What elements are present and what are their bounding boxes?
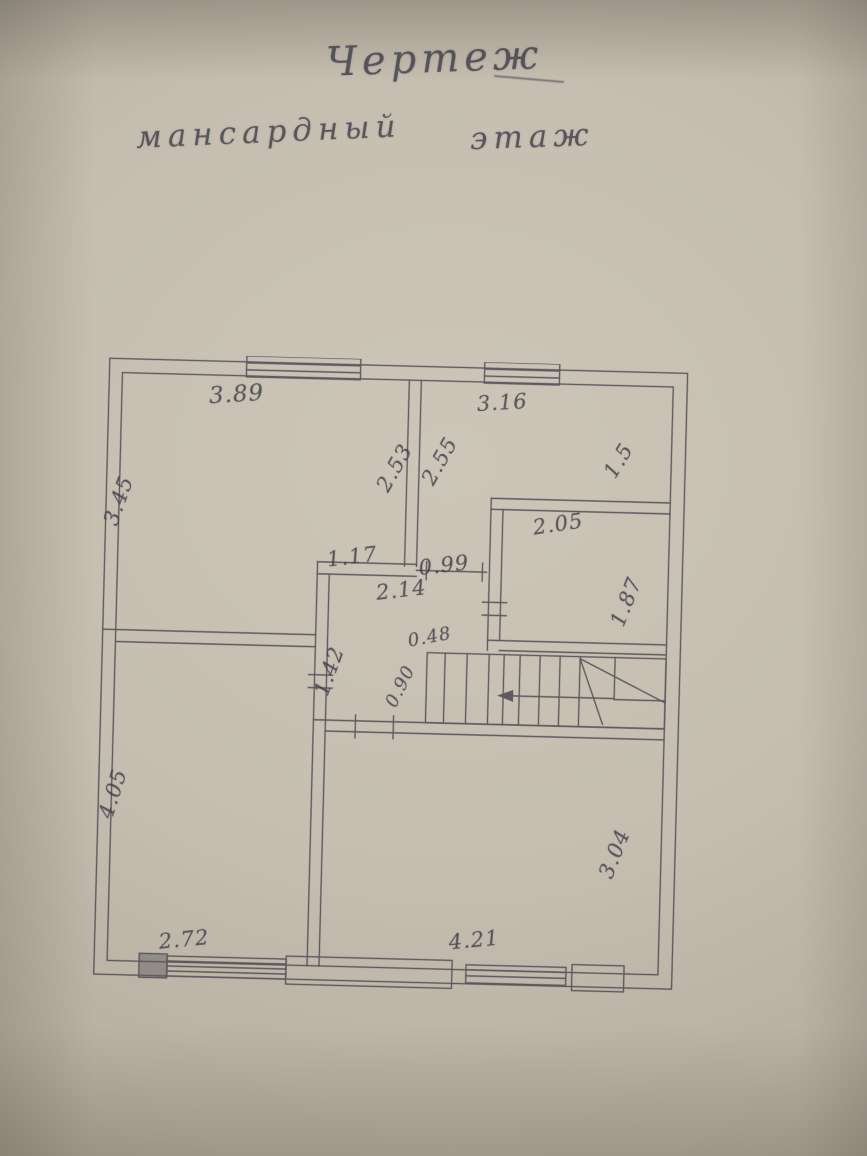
wall-line (491, 498, 670, 503)
stair-step (538, 656, 540, 726)
photo-of-paper-drawing: Чертеж мансардный этаж (0, 0, 867, 1156)
stair-step (443, 653, 445, 723)
drawing-subtitle-word2: этаж (469, 117, 595, 157)
wall-hall-bottom (313, 714, 664, 746)
stair-winder-line (579, 659, 666, 703)
window-hatch (485, 376, 560, 378)
balcony-door-bottom-center (286, 956, 453, 988)
stair-step (502, 655, 504, 725)
wall-line (500, 510, 503, 641)
wall-vertical-divider (301, 562, 336, 966)
wall-line (488, 640, 667, 645)
door-jamb (355, 715, 356, 738)
wall-line (499, 651, 666, 655)
window-hatch (167, 966, 286, 969)
window-hatch (167, 971, 286, 974)
window-top-right (484, 362, 560, 385)
window-hatch (247, 370, 361, 373)
wall-line (317, 574, 416, 577)
window-frame (466, 965, 566, 986)
stair-landing-edge (614, 700, 665, 701)
stair-step (558, 656, 560, 726)
window-bottom-left (167, 956, 286, 979)
floor-plan-drawing (83, 352, 691, 1002)
dim-bottom-right-room-width: 4.21 (448, 926, 501, 955)
floor-plan: 3.89 3.16 3.45 2.53 2.55 1.5 2.05 1.87 1… (83, 352, 691, 1002)
stair-step (578, 657, 580, 727)
wall-line (103, 629, 316, 635)
stair-step (465, 654, 467, 724)
stair-landing-edge (614, 658, 615, 700)
door-jamb (483, 602, 507, 603)
wall-line (487, 498, 491, 650)
window-frame (484, 362, 560, 385)
wall-line (115, 642, 315, 647)
wall-line (325, 731, 664, 740)
dim-top-left-room-width: 3.89 (208, 380, 265, 409)
staircase (425, 653, 666, 729)
dim-bottom-left-room-width: 2.72 (158, 925, 211, 954)
wall-line (307, 562, 318, 966)
stair-step (487, 654, 489, 724)
window-hatch (466, 970, 566, 973)
window-bottom-right (466, 965, 566, 986)
wall-topleft-room-south (102, 629, 315, 647)
door-jamb (482, 615, 506, 616)
stair-direction-arrow (511, 696, 614, 699)
window-hatch (466, 976, 566, 979)
wall-line (319, 574, 329, 966)
stair-step (518, 655, 520, 725)
stair-outline (425, 653, 666, 729)
wall-pier (139, 953, 168, 978)
dim-top-right-room-width: 3.16 (476, 389, 528, 416)
drawing-subtitle-word1: мансардный (135, 108, 402, 156)
door-jamb (393, 716, 394, 739)
stair-arrow-head (497, 690, 513, 702)
